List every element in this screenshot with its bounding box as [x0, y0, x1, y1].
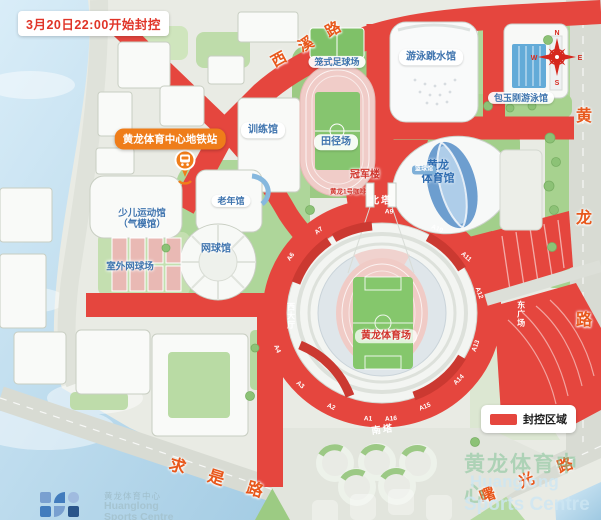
label-stadium: 黄龙体育场	[355, 329, 417, 343]
label-champion-building: 冠军楼	[350, 169, 380, 181]
metro-station-label: 黄龙体育中心地铁站	[115, 129, 226, 150]
label-north-tower: 北塔	[369, 197, 392, 208]
compass-e: E	[578, 55, 583, 62]
label-tennis-hall: 网球馆	[201, 243, 231, 255]
compass-s: S	[555, 80, 560, 87]
closure-banner: 3月20日22:00开始封控	[18, 11, 169, 36]
roadname-qiushi-2: 是	[205, 462, 228, 490]
roadname-huanglong-3: 路	[576, 306, 592, 330]
label-caged-football: 笼式足球场	[308, 56, 365, 68]
label-outdoor-tennis: 室外网球场	[106, 263, 154, 274]
roadname-huanglong-1: 黄	[576, 102, 592, 126]
map-canvas: N E S W	[0, 0, 601, 520]
closure-map: N E S W 3月20日22:00开始封控 黄龙体育中心地铁站 笼式足球场 游…	[0, 0, 601, 520]
label-west-hall: 西大厅	[286, 303, 295, 330]
gate-a9: A9	[385, 208, 394, 215]
tennis-hall-building	[180, 224, 256, 300]
footer-logo-en2: Sports Centre	[104, 511, 173, 520]
gate-a1: A1	[364, 415, 373, 422]
swim-dive-building	[390, 22, 478, 122]
gate-a16: A16	[385, 415, 398, 423]
huanglong-logo-icon	[40, 490, 96, 520]
label-east-plaza: 东广场	[516, 301, 525, 328]
label-basketball: 篮球馆	[412, 166, 436, 175]
legend-closure-swatch	[490, 414, 517, 425]
roadname-huanglong-2: 龙	[576, 204, 592, 228]
legend: 封控区域	[481, 405, 576, 433]
school-courtyard	[168, 352, 230, 418]
label-coffee: 黄龙1号咖啡	[330, 188, 366, 195]
label-pao-pool: 包玉刚游泳馆	[488, 92, 554, 104]
legend-closure-label: 封控区域	[523, 411, 567, 427]
label-senior-hall: 老年馆	[211, 195, 250, 207]
label-children-hall: 少儿运动馆 （气模馆）	[118, 209, 166, 231]
label-children-line2: （气模馆）	[118, 220, 166, 231]
label-training-hall: 训练馆	[241, 122, 285, 138]
label-swim-dive: 游泳跳水馆	[399, 49, 463, 65]
compass-w: W	[531, 55, 538, 62]
watermark-en2: Sports Centre	[464, 494, 590, 516]
watermark-en1: Huanglong	[470, 472, 559, 492]
label-track-field: 田径场	[314, 134, 358, 150]
roadname-huanglong: 黄 龙 路	[576, 102, 592, 330]
compass-n: N	[554, 30, 559, 37]
gym-terrace	[500, 150, 542, 230]
